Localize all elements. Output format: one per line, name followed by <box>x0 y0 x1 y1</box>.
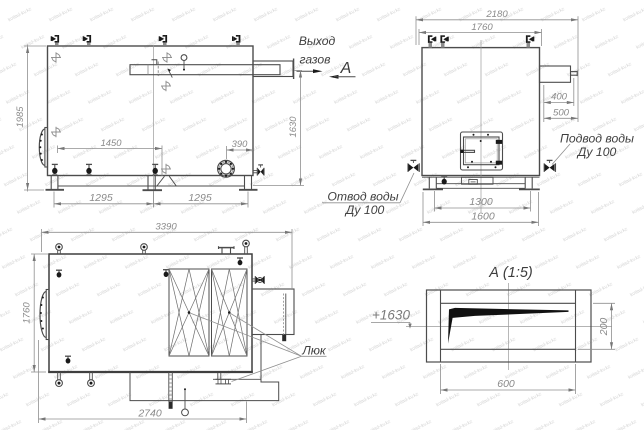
svg-text:200: 200 <box>598 318 610 337</box>
svg-text:1600: 1600 <box>471 211 495 223</box>
svg-text:газов: газов <box>299 53 330 67</box>
svg-text:390: 390 <box>232 138 248 149</box>
svg-text:Выход: Выход <box>299 34 336 48</box>
svg-text:2180: 2180 <box>485 9 508 20</box>
svg-text:1450: 1450 <box>101 137 123 148</box>
svg-text:3390: 3390 <box>155 222 177 233</box>
svg-text:Ду 100: Ду 100 <box>576 145 617 159</box>
svg-text:600: 600 <box>497 378 515 390</box>
svg-text:А: А <box>340 60 352 77</box>
svg-text:Люк: Люк <box>301 344 327 358</box>
svg-text:1300: 1300 <box>469 196 493 208</box>
svg-text:1295: 1295 <box>188 192 212 204</box>
svg-text:Подвод воды: Подвод воды <box>560 132 634 146</box>
svg-text:Ду 100: Ду 100 <box>344 203 385 217</box>
svg-text:Отвод воды: Отвод воды <box>327 190 398 204</box>
svg-text:А (1:5): А (1:5) <box>488 265 533 281</box>
svg-text:500: 500 <box>553 108 570 119</box>
svg-text:1295: 1295 <box>89 192 113 204</box>
svg-text:1630: 1630 <box>287 116 298 138</box>
svg-text:2740: 2740 <box>137 408 162 420</box>
svg-text:+1630: +1630 <box>372 308 410 323</box>
svg-text:1985: 1985 <box>14 106 25 128</box>
svg-text:1760: 1760 <box>471 22 493 33</box>
svg-text:1760: 1760 <box>22 302 33 324</box>
svg-text:400: 400 <box>551 92 568 103</box>
